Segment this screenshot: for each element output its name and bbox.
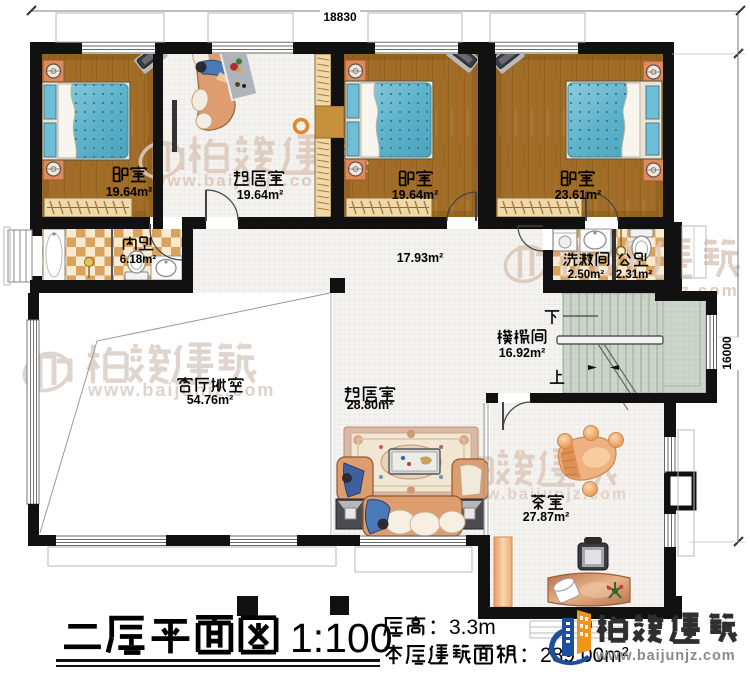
svg-text:2.31m²: 2.31m² [616, 269, 653, 281]
svg-text:54.76m²: 54.76m² [187, 393, 234, 407]
svg-text:16.92m²: 16.92m² [499, 346, 546, 360]
svg-text:1:100: 1:100 [290, 615, 393, 661]
svg-text:：3.3m: ：3.3m [428, 616, 496, 639]
svg-text:19.64m²: 19.64m² [237, 188, 284, 202]
svg-text:28.80m²: 28.80m² [347, 398, 394, 412]
svg-text:2.50m²: 2.50m² [568, 269, 605, 281]
svg-text:19.64m²: 19.64m² [106, 185, 153, 199]
svg-text:23.61m²: 23.61m² [555, 188, 602, 202]
svg-text:6.18m²: 6.18m² [120, 254, 157, 266]
svg-text:16000: 16000 [720, 336, 734, 370]
svg-text:27.87m²: 27.87m² [523, 510, 570, 524]
svg-text:www.baijunjz.com: www.baijunjz.com [595, 648, 736, 664]
svg-text:18830: 18830 [323, 10, 357, 24]
svg-text:17.93m²: 17.93m² [397, 251, 444, 265]
svg-text:19.64m²: 19.64m² [392, 188, 439, 202]
